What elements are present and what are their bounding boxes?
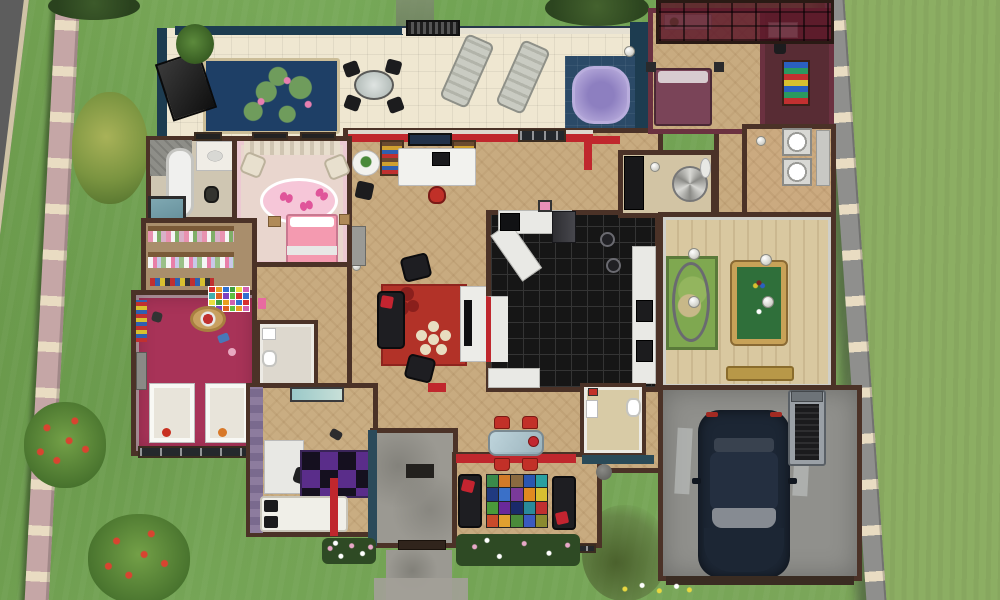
teen-bed-pillow bbox=[264, 500, 278, 512]
kitchen-sink[interactable] bbox=[636, 340, 653, 362]
crib-toy bbox=[162, 428, 171, 437]
game-viewport bbox=[0, 0, 1000, 600]
rug-cell bbox=[216, 293, 222, 298]
car-mirror bbox=[692, 478, 701, 484]
rug-cell bbox=[236, 306, 242, 311]
small-sink[interactable] bbox=[586, 400, 598, 418]
rug-cell bbox=[499, 515, 510, 527]
rug-cell bbox=[511, 488, 522, 500]
dining-chair-red[interactable] bbox=[494, 458, 510, 471]
rug-cell bbox=[511, 475, 522, 487]
bedroom-window bbox=[300, 132, 336, 140]
bedroom-window bbox=[252, 132, 288, 140]
rug-cell bbox=[236, 300, 242, 305]
laundry-counter[interactable] bbox=[816, 130, 830, 186]
toilet[interactable] bbox=[204, 186, 219, 203]
rug-cell bbox=[487, 488, 498, 500]
clothes-rack[interactable] bbox=[148, 252, 234, 268]
rug-cell bbox=[487, 475, 498, 487]
wall-poster[interactable] bbox=[408, 133, 452, 146]
crib-toy bbox=[218, 428, 227, 437]
office-chair[interactable] bbox=[428, 186, 446, 204]
dining-chair-red[interactable] bbox=[522, 458, 538, 471]
rug-cell bbox=[209, 300, 215, 305]
pink-towel bbox=[258, 298, 266, 309]
rug-cell bbox=[524, 488, 535, 500]
front-door[interactable] bbox=[398, 540, 446, 550]
rug-cell bbox=[236, 293, 242, 298]
rug-cell bbox=[236, 287, 242, 292]
potted-plant[interactable] bbox=[176, 24, 214, 64]
rug-flower-cream bbox=[428, 334, 439, 345]
rug-cell bbox=[223, 300, 229, 305]
conservatory-roof bbox=[656, 0, 834, 44]
television[interactable] bbox=[464, 300, 472, 346]
rug-cell bbox=[230, 300, 236, 305]
black-wardrobe[interactable] bbox=[624, 156, 644, 210]
rug-cell bbox=[223, 306, 229, 311]
rug-cell bbox=[524, 475, 535, 487]
kitchen-counter-bottom[interactable] bbox=[488, 368, 540, 388]
car-taillight bbox=[706, 412, 718, 417]
kitchen-sink[interactable] bbox=[636, 300, 653, 322]
treadmill-belt bbox=[795, 404, 819, 460]
apple-tree-upper bbox=[24, 402, 106, 488]
car-taillight bbox=[770, 412, 782, 417]
rug-cell bbox=[487, 502, 498, 514]
rug-cell bbox=[524, 515, 535, 527]
pink-bed-blanket-fold bbox=[287, 246, 337, 255]
car-rear-window bbox=[714, 438, 774, 452]
car-roof bbox=[710, 452, 778, 510]
sofa-red-pillow bbox=[380, 295, 394, 309]
rug-cell bbox=[487, 515, 498, 527]
ceiling-lamp bbox=[756, 136, 766, 146]
trash-can[interactable] bbox=[596, 464, 612, 480]
game-room-bench[interactable] bbox=[726, 366, 794, 381]
bathroom-window bbox=[194, 132, 222, 141]
car-mirror bbox=[788, 478, 797, 484]
small-sink[interactable] bbox=[262, 328, 276, 340]
dryer-machine[interactable] bbox=[782, 158, 812, 186]
crib[interactable] bbox=[150, 384, 194, 442]
rug-cell bbox=[499, 475, 510, 487]
pink-bed-pillows bbox=[290, 217, 334, 227]
ceiling-lamp bbox=[760, 254, 772, 266]
patio-gate[interactable] bbox=[406, 20, 460, 36]
kitchen-wall-art[interactable] bbox=[538, 200, 552, 212]
rug-cell bbox=[536, 475, 547, 487]
koi-pond[interactable] bbox=[203, 58, 340, 134]
kids-room-window bbox=[138, 446, 252, 458]
car-windshield bbox=[712, 508, 776, 528]
nightstand[interactable] bbox=[714, 62, 724, 72]
toilet[interactable] bbox=[262, 350, 277, 367]
teal-wall-accent bbox=[582, 455, 654, 464]
outdoor-table[interactable] bbox=[354, 70, 394, 100]
red-wall-accent bbox=[428, 383, 446, 392]
rug-cell bbox=[243, 287, 249, 292]
street-road bbox=[0, 0, 30, 361]
refrigerator[interactable] bbox=[552, 211, 576, 243]
entry-path-apron bbox=[374, 578, 468, 600]
nightstand[interactable] bbox=[646, 62, 656, 72]
shoe-row[interactable] bbox=[150, 278, 214, 286]
colorful-shelf[interactable] bbox=[782, 60, 810, 106]
rug-cell bbox=[216, 287, 222, 292]
rug-cell bbox=[230, 287, 236, 292]
red-wall-accent bbox=[584, 142, 592, 170]
crib[interactable] bbox=[206, 384, 248, 442]
changing-table[interactable] bbox=[136, 352, 147, 390]
rug-cell bbox=[216, 300, 222, 305]
kids-bookshelf[interactable] bbox=[136, 300, 147, 342]
rug-cell bbox=[536, 502, 547, 514]
flower-hedge bbox=[456, 534, 580, 566]
ceiling-lamp bbox=[650, 162, 660, 172]
toy-doll[interactable] bbox=[228, 348, 236, 356]
toilet[interactable] bbox=[626, 398, 641, 417]
rug-cell bbox=[243, 306, 249, 311]
ceiling-lamp bbox=[762, 296, 774, 308]
red-wall-accent bbox=[330, 478, 338, 536]
entry-teal-wall bbox=[368, 430, 377, 546]
master-bed-pillows bbox=[658, 71, 708, 83]
left-boundary-wall bbox=[23, 0, 80, 600]
teen-bed-pillow bbox=[264, 516, 278, 528]
car-hood bbox=[704, 528, 784, 572]
flower-hedge bbox=[322, 538, 376, 564]
stove[interactable] bbox=[500, 213, 520, 231]
rug-cell bbox=[524, 502, 535, 514]
rug-cell bbox=[223, 287, 229, 292]
tree-mid-left bbox=[72, 92, 148, 204]
wildflowers bbox=[612, 580, 698, 598]
dining-chair-red[interactable] bbox=[494, 416, 510, 429]
dining-chair-red[interactable] bbox=[522, 416, 538, 429]
ceiling-lamp bbox=[688, 296, 700, 308]
rug-cell bbox=[243, 293, 249, 298]
bar-stool[interactable] bbox=[606, 258, 621, 273]
rug-cell bbox=[209, 287, 215, 292]
curtains bbox=[244, 141, 340, 155]
dining-chair-black[interactable] bbox=[354, 180, 374, 200]
treadmill-console bbox=[791, 391, 823, 402]
bar-stool[interactable] bbox=[600, 232, 615, 247]
dining-centerpiece bbox=[528, 436, 539, 447]
clothes-rack[interactable] bbox=[148, 226, 234, 242]
patchwork-rug[interactable] bbox=[486, 474, 548, 528]
bathroom-sink-counter[interactable] bbox=[196, 141, 234, 171]
round-side-table[interactable] bbox=[352, 150, 380, 176]
pool-table-felt bbox=[737, 267, 781, 339]
door-mat bbox=[406, 464, 434, 478]
bathroom-art-red bbox=[588, 388, 598, 396]
patio-lamp[interactable] bbox=[624, 46, 635, 57]
entry-hall-floor bbox=[370, 428, 458, 548]
rug-cell bbox=[499, 502, 510, 514]
rug-cell bbox=[230, 293, 236, 298]
rug-cell bbox=[536, 515, 547, 527]
rug-cell bbox=[511, 515, 522, 527]
living-north-window bbox=[518, 129, 566, 142]
aquarium[interactable] bbox=[290, 387, 344, 402]
rug-cell bbox=[209, 293, 215, 298]
ceiling-lamp bbox=[688, 248, 700, 260]
hot-tub[interactable] bbox=[572, 66, 630, 124]
rug-cell bbox=[536, 488, 547, 500]
kitchen-island[interactable] bbox=[486, 296, 508, 362]
apple-tree-lower bbox=[88, 514, 190, 600]
rug-cell bbox=[243, 300, 249, 305]
rug-cell bbox=[499, 488, 510, 500]
rug-cell bbox=[223, 293, 229, 298]
sofa-red-pillow bbox=[555, 511, 569, 525]
nightstand[interactable] bbox=[268, 216, 281, 227]
rug-cell bbox=[230, 306, 236, 311]
nightstand[interactable] bbox=[339, 214, 350, 225]
play-rug[interactable] bbox=[190, 306, 226, 332]
washing-machine[interactable] bbox=[782, 128, 812, 156]
desktop-computer[interactable] bbox=[432, 152, 450, 166]
rug-cell bbox=[511, 502, 522, 514]
bath-mirror bbox=[700, 158, 711, 178]
